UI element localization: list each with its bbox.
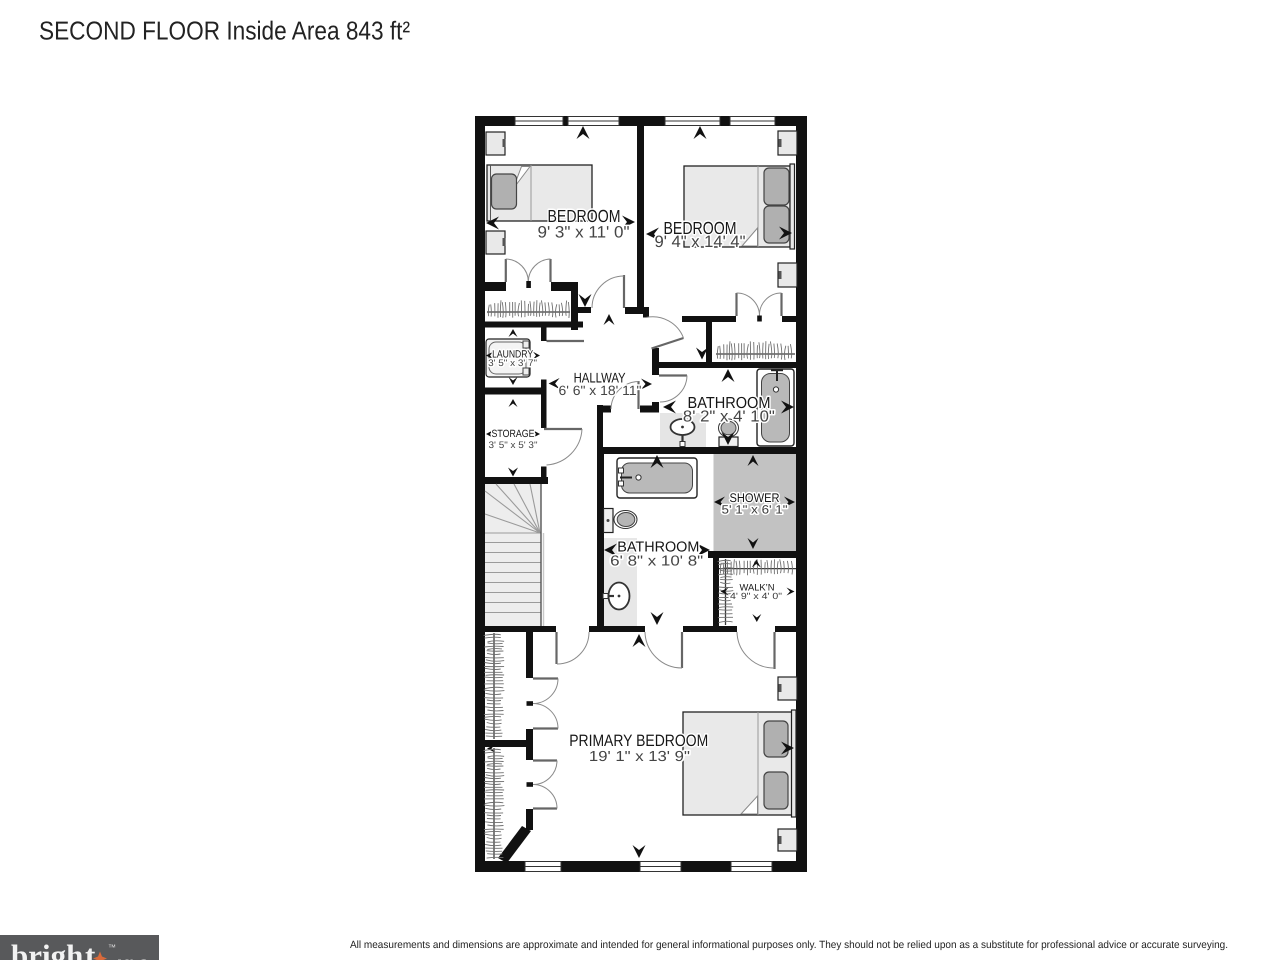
svg-text:4' 9" x 4' 0": 4' 9" x 4' 0" — [730, 591, 782, 601]
svg-text:SECOND FLOOR Inside Area 843 f: SECOND FLOOR Inside Area 843 ft² — [39, 15, 410, 45]
svg-text:9' 3" x 11' 0": 9' 3" x 11' 0" — [538, 223, 630, 241]
svg-text:t: t — [85, 938, 96, 960]
svg-text:6' 8" x 10' 8": 6' 8" x 10' 8" — [610, 554, 703, 570]
svg-text:9' 4" x 14' 4": 9' 4" x 14' 4" — [655, 233, 746, 251]
svg-text:brigh: brigh — [11, 938, 83, 960]
svg-text:PRIMARY BEDROOM: PRIMARY BEDROOM — [569, 732, 708, 750]
svg-text:All measurements and dimension: All measurements and dimensions are appr… — [350, 939, 1228, 951]
svg-text:™: ™ — [108, 943, 116, 952]
svg-text:6' 6" x 18' 11": 6' 6" x 18' 11" — [559, 383, 642, 398]
svg-text:STORAGE: STORAGE — [492, 428, 535, 440]
svg-text:5' 1" x 6' 1": 5' 1" x 6' 1" — [722, 503, 788, 517]
svg-text:19' 1" x 13' 9": 19' 1" x 13' 9" — [589, 749, 690, 765]
svg-text:8' 2" x 4' 10": 8' 2" x 4' 10" — [683, 409, 775, 426]
svg-text:3' 5" x 3' 7": 3' 5" x 3' 7" — [488, 358, 537, 369]
svg-text:3' 5" x 5' 3": 3' 5" x 5' 3" — [489, 440, 538, 451]
